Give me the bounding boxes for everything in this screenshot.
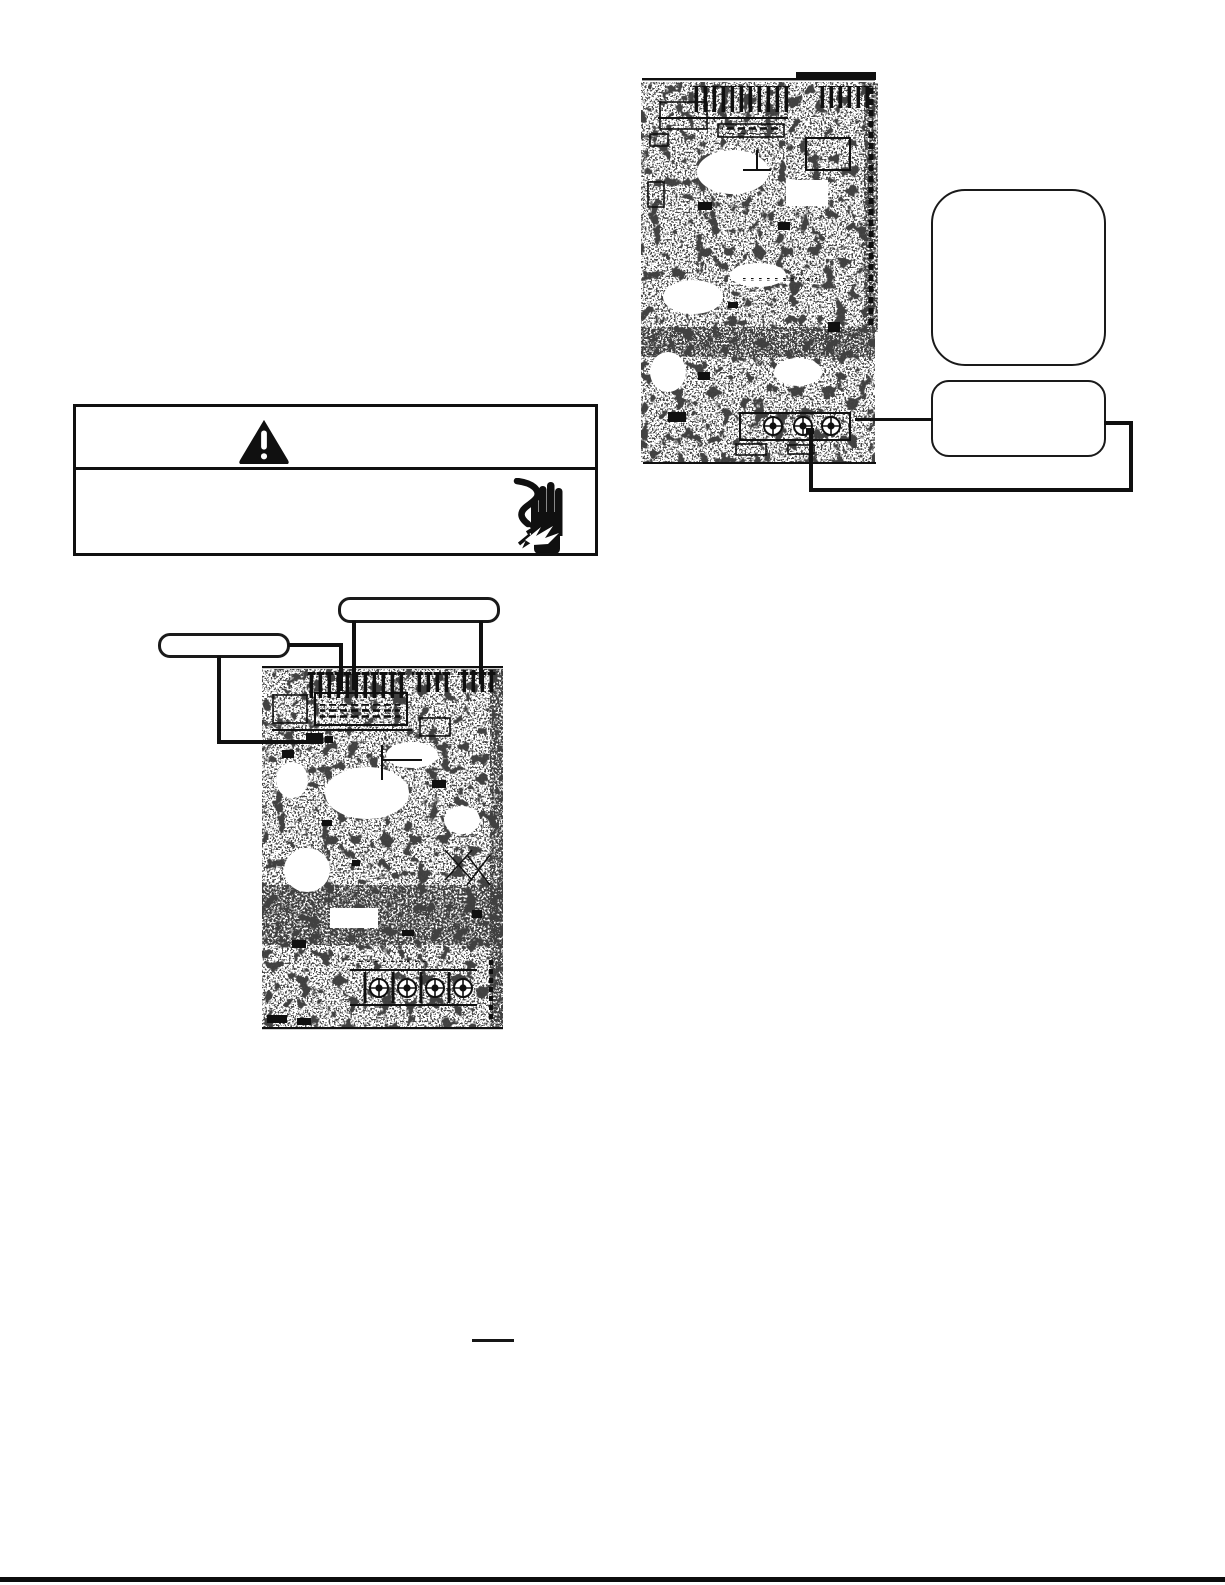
- pcb-figure-top-right: [638, 72, 878, 465]
- leader-line-side-box-down: [339, 643, 343, 691]
- callout-box-large: [931, 189, 1106, 366]
- callout-box-left-top: [338, 597, 500, 623]
- leader-line-right-vertical: [1129, 421, 1133, 492]
- leader-line-side-box-bottom-vertical: [217, 656, 221, 744]
- warning-header-band: [76, 407, 595, 470]
- leader-line-side-box-bottom-horizontal: [217, 740, 317, 744]
- leader-line-side-box-horizontal: [288, 643, 343, 647]
- connector-pins-row: [690, 86, 790, 112]
- warning-callout-box: [73, 404, 598, 556]
- underline-mark: [472, 1339, 514, 1342]
- warning-body-band: [76, 470, 595, 553]
- connector-pins-row: [816, 86, 872, 108]
- leader-line-bottom-horizontal: [809, 488, 1133, 492]
- connector-pins-row: [458, 670, 496, 692]
- manual-page: [0, 0, 1225, 1585]
- callout-label: [933, 191, 1104, 364]
- leader-line-board-pointer: [809, 430, 813, 492]
- pcb-figure-left: [262, 660, 503, 1030]
- connector-pins-row: [307, 672, 407, 698]
- leader-line-top-box-1: [352, 621, 356, 690]
- page-bottom-rule: [0, 1577, 1225, 1582]
- callout-label: [161, 636, 287, 655]
- callout-box-left-side: [158, 633, 290, 658]
- callout-label: [933, 382, 1104, 455]
- leader-line-small-box-right: [1104, 421, 1131, 425]
- electric-shock-hand-icon: [507, 478, 569, 558]
- warning-triangle-icon: [236, 418, 292, 464]
- callout-label: [341, 600, 497, 620]
- connector-pins-row: [412, 672, 452, 692]
- leader-line-small-box-left: [855, 418, 933, 421]
- callout-box-small: [931, 380, 1106, 457]
- leader-line-top-box-2: [479, 621, 483, 684]
